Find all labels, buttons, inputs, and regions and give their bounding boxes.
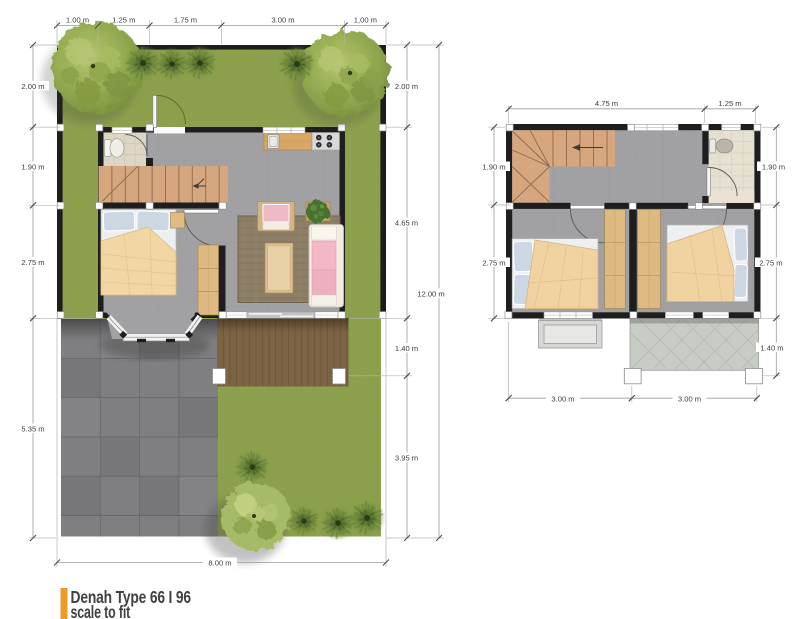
- svg-text:3.00 m: 3.00 m: [271, 16, 294, 25]
- svg-text:1.90 m: 1.90 m: [21, 162, 44, 171]
- svg-text:1.75 m: 1.75 m: [174, 16, 197, 25]
- svg-text:2.00 m: 2.00 m: [21, 82, 44, 91]
- svg-text:scale to fit: scale to fit: [71, 603, 131, 619]
- svg-text:1.40 m: 1.40 m: [760, 343, 783, 352]
- svg-text:2.75 m: 2.75 m: [21, 258, 44, 267]
- svg-text:3.00 m: 3.00 m: [678, 394, 701, 403]
- svg-text:4.65 m: 4.65 m: [395, 218, 418, 227]
- svg-text:3.95 m: 3.95 m: [395, 453, 418, 462]
- svg-text:1.00 m: 1.00 m: [66, 16, 89, 25]
- svg-text:12.00 m: 12.00 m: [417, 289, 444, 298]
- svg-text:3.00 m: 3.00 m: [551, 394, 574, 403]
- svg-text:2.75 m: 2.75 m: [759, 258, 782, 267]
- svg-text:1.90 m: 1.90 m: [762, 162, 785, 171]
- svg-text:2.75 m: 2.75 m: [482, 258, 505, 267]
- svg-text:5.35 m: 5.35 m: [21, 424, 44, 433]
- svg-text:2.00 m: 2.00 m: [395, 82, 418, 91]
- svg-text:1.25 m: 1.25 m: [112, 16, 135, 25]
- svg-text:1.40 m: 1.40 m: [395, 344, 418, 353]
- svg-text:1.25 m: 1.25 m: [718, 99, 741, 108]
- svg-text:1.90 m: 1.90 m: [482, 162, 505, 171]
- svg-text:4.75 m: 4.75 m: [595, 99, 618, 108]
- svg-text:8.00 m: 8.00 m: [208, 558, 231, 567]
- svg-text:1,00 m: 1,00 m: [354, 16, 377, 25]
